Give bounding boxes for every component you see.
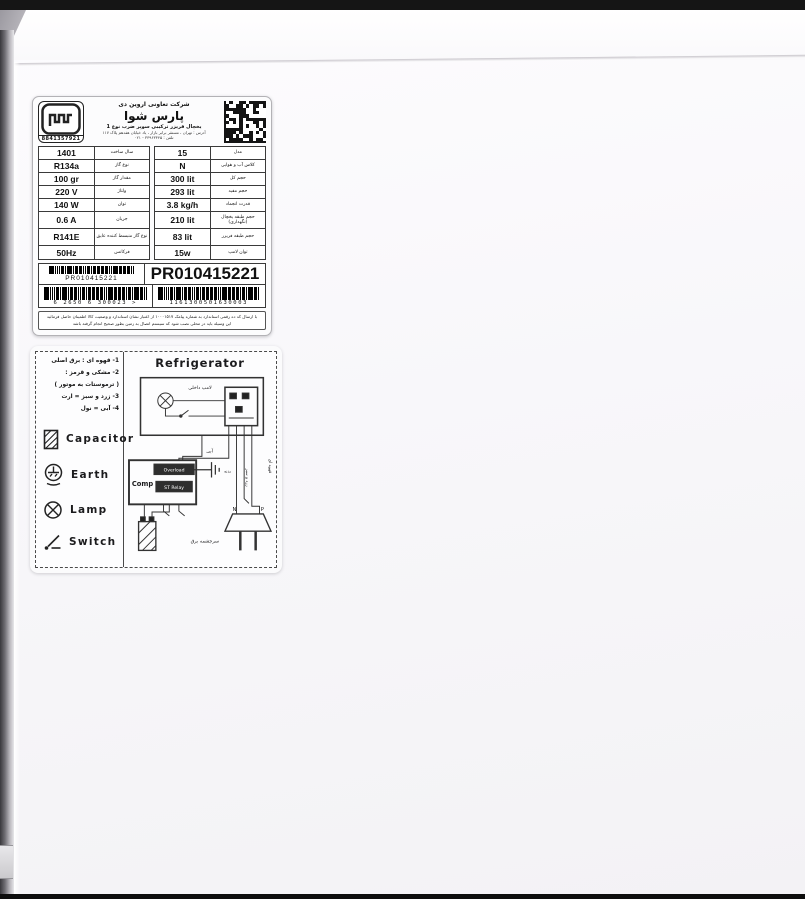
wiring-diagram-label: 1- قهوه ای : برق اصلی 2- مشکی و قرمز : (… <box>30 346 282 573</box>
spec-field-label: حجم طبقه یخچال (نگهداری) <box>211 212 265 228</box>
spec-value: 210 lit <box>155 212 211 228</box>
diagram-title: Refrigerator <box>125 356 275 370</box>
spec-field-label: فرکانس <box>95 246 149 259</box>
spec-value: 300 lit <box>155 173 211 185</box>
spec-field-label: قدرت انجماد <box>211 199 265 211</box>
st-relay-label: ST Relay <box>164 485 184 491</box>
fridge-edge-highlight <box>14 62 20 894</box>
spec-table-right: 15مدل Nکلاس آب و هوایی 300 litحجم کل 293… <box>154 146 266 260</box>
circuit-diagram-icon: لامپ داخلی آبی Overload ST Relay Comp بد… <box>125 370 275 560</box>
spec-field-label: حجم کل <box>211 173 265 185</box>
table-row: 140 Wتوان <box>39 199 149 212</box>
iran-standard-icon <box>41 103 81 135</box>
address-line-2: تلفن : ۳۳۹۶۳۳۴۵ - ۰۲۱ <box>87 135 221 140</box>
switch-icon <box>43 533 62 551</box>
fridge-left-edge <box>0 30 14 894</box>
specification-label: 8841357921 شرکت تعاونی اروین دی پارس شوا… <box>32 96 272 336</box>
door-hinge <box>0 845 13 879</box>
table-row: R134aنوع گاز <box>39 160 149 173</box>
spec-field-label: مدل <box>211 147 265 159</box>
standard-mark-number: 8841357921 <box>39 135 83 142</box>
barcode-row: 6 2650 6 300023 > 1161300501630003 <box>38 285 266 308</box>
spec-value: 15w <box>155 246 211 259</box>
blue-wire-label: آبی <box>206 448 213 455</box>
terminal-p-label: P <box>261 507 264 513</box>
table-row: 15مدل <box>155 147 265 160</box>
table-row: 293 litحجم مفید <box>155 186 265 199</box>
overload-label: Overload <box>164 468 185 474</box>
table-row: Nکلاس آب و هوایی <box>155 160 265 173</box>
yellow-green-wire-label: زرد و سبز <box>244 467 249 486</box>
lamp-icon <box>43 500 63 520</box>
serial-number-large: PR010415221 <box>145 264 265 284</box>
barcode-right-digits: 1161300501630003 <box>158 300 261 306</box>
datamatrix-code-icon <box>224 101 266 143</box>
barcode-right-icon <box>158 287 261 300</box>
wiring-label-frame: 1- قهوه ای : برق اصلی 2- مشکی و قرمز : (… <box>35 351 277 568</box>
spec-field-label: ولتاژ <box>95 186 149 198</box>
table-row: 0.6 Aجریان <box>39 212 149 229</box>
wiring-diagram-area: Refrigerator <box>124 352 276 567</box>
spec-field-label: مقدار گاز <box>95 173 149 185</box>
compressor-label: Comp <box>132 480 154 488</box>
wiring-legend: 1- قهوه ای : برق اصلی 2- مشکی و قرمز : (… <box>36 352 124 567</box>
body-earth-label: بدنه <box>224 470 231 475</box>
photo-top-border <box>0 0 805 10</box>
spec-field-label: سال ساخت <box>95 147 149 159</box>
brown-wire-label: قهوه ای <box>267 459 272 473</box>
spec-value: N <box>155 160 211 172</box>
spec-value: 100 gr <box>39 173 95 185</box>
serial-barcode-cell: PR010415221 <box>39 264 145 284</box>
table-row: 83 litحجم طبقه فریزر <box>155 229 265 246</box>
serial-barcode-icon <box>49 266 134 274</box>
standard-mark: 8841357921 <box>38 101 84 143</box>
table-row: 1401سال ساخت <box>39 147 149 160</box>
table-row: 300 litحجم کل <box>155 173 265 186</box>
spec-value: 83 lit <box>155 229 211 245</box>
table-row: 15wتوان لامپ <box>155 246 265 259</box>
note-line: 3- زرد و سبز = ارت <box>43 392 119 404</box>
spec-field-label: توان <box>95 199 149 211</box>
legend-item-earth: Earth <box>43 463 119 486</box>
capacitor-icon <box>43 429 59 450</box>
serial-number-small: PR010415221 <box>45 275 138 282</box>
table-row: R141Eنوع گاز منبسط کننده عایق <box>39 229 149 246</box>
table-row: 220 Vولتاژ <box>39 186 149 199</box>
note-line: 4- آبی = نول <box>43 404 119 416</box>
spec-field-label: توان لامپ <box>211 246 265 259</box>
barcode-left-digits: 6 2650 6 300023 > <box>44 300 147 306</box>
legend-label: Switch <box>69 536 116 548</box>
footnote-line-1: با ارسال کد ده رقمی استاندارد به شماره پ… <box>42 314 262 321</box>
fridge-top-panel <box>0 10 805 60</box>
table-row: 3.8 kg/hقدرت انجماد <box>155 199 265 212</box>
spec-field-label: نوع گاز <box>95 160 149 172</box>
spec-field-label: حجم مفید <box>211 186 265 198</box>
footnote-line-2: این وسیله باید در محلی نصب شود که سیستم … <box>42 321 262 328</box>
spec-label-header: 8841357921 شرکت تعاونی اروین دی پارس شوا… <box>38 101 266 143</box>
spec-value: 3.8 kg/h <box>155 199 211 211</box>
spec-value: 15 <box>155 147 211 159</box>
spec-footnote: با ارسال کد ده رقمی استاندارد به شماره پ… <box>38 311 266 330</box>
barcode-left-cell: 6 2650 6 300023 > <box>39 285 152 307</box>
legend-item-capacitor: Capacitor <box>43 429 119 450</box>
wire-color-notes: 1- قهوه ای : برق اصلی 2- مشکی و قرمز : (… <box>43 356 119 415</box>
spec-table: 1401سال ساخت R134aنوع گاز 100 grمقدار گا… <box>38 146 266 260</box>
spec-field-label: حجم طبقه فریزر <box>211 229 265 245</box>
note-line: 1- قهوه ای : برق اصلی <box>43 356 119 368</box>
spec-value: 0.6 A <box>39 212 95 228</box>
serial-row: PR010415221 PR010415221 <box>38 263 266 285</box>
spec-table-left: 1401سال ساخت R134aنوع گاز 100 grمقدار گا… <box>38 146 150 260</box>
company-name: شرکت تعاونی اروین دی <box>87 101 221 109</box>
spec-field-label: جریان <box>95 212 149 228</box>
spec-field-label: کلاس آب و هوایی <box>211 160 265 172</box>
barcode-left-icon <box>44 287 147 300</box>
legend-item-switch: Switch <box>43 533 119 551</box>
spec-value: 1401 <box>39 147 95 159</box>
spec-value: 140 W <box>39 199 95 211</box>
lamp-wire-label: لامپ داخلی <box>188 385 212 391</box>
spec-value: 50Hz <box>39 246 95 259</box>
spec-value: 220 V <box>39 186 95 198</box>
product-description: یخچال فریزر ترکیبی سوپر ضرب نوع 1 <box>87 124 221 130</box>
table-row: 100 grمقدار گاز <box>39 173 149 186</box>
spec-value: R141E <box>39 229 95 245</box>
spec-header-text: شرکت تعاونی اروین دی پارس شوا یخچال فریز… <box>87 101 221 140</box>
photo-bottom-border <box>0 894 805 899</box>
spec-value: 293 lit <box>155 186 211 198</box>
earth-icon <box>43 463 64 486</box>
table-row: 50Hzفرکانس <box>39 246 149 259</box>
power-source-label: سرچشمه برق <box>191 539 219 545</box>
refrigerator-photo: 8841357921 شرکت تعاونی اروین دی پارس شوا… <box>0 0 805 899</box>
note-line: ( ترموستات به موتور ) <box>43 380 119 392</box>
spec-field-label: نوع گاز منبسط کننده عایق <box>95 229 149 245</box>
brand-name: پارس شوا <box>87 109 221 124</box>
barcode-right-cell: 1161300501630003 <box>152 285 266 307</box>
note-line: 2- مشکی و قرمز : <box>43 368 119 380</box>
legend-label: Earth <box>71 469 109 481</box>
table-row: 210 litحجم طبقه یخچال (نگهداری) <box>155 212 265 229</box>
legend-label: Lamp <box>70 504 107 516</box>
terminal-n-label: N <box>233 507 237 513</box>
spec-value: R134a <box>39 160 95 172</box>
legend-item-lamp: Lamp <box>43 500 119 520</box>
